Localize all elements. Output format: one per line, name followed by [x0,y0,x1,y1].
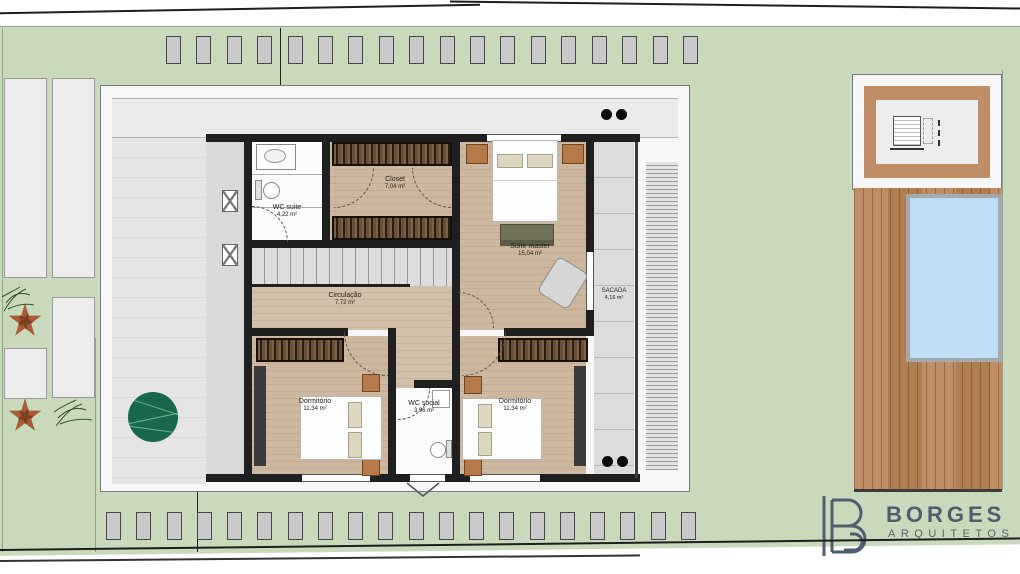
sketch-line-vertical [95,338,96,552]
spotlight-icon [602,456,613,467]
lawn-edge-line [0,26,1020,27]
room-label-closet: Closet 7,04 m² [360,176,430,191]
pergola-beam [167,512,182,540]
pergola-beam [500,36,515,64]
pillow [527,154,553,168]
brand-name: BORGES [886,502,1005,528]
wall [414,380,452,388]
pergola-beam [560,512,575,540]
pergola-beam [683,36,698,64]
room-sacada-floor [594,142,634,478]
pergola-beam [288,36,303,64]
pergola-beam [196,36,211,64]
pergola-beam [257,36,272,64]
bed-fold-line [492,180,558,181]
wardrobe [256,338,344,362]
pergola-beam [378,512,393,540]
wall [206,474,302,482]
room-label-sacada: SACADA 4,16 m² [595,288,633,301]
roof-eave-strip [112,98,678,138]
toilet-bowl [263,182,280,199]
sketch-line-vertical [1002,70,1003,490]
pillow [348,432,362,458]
nightstand [362,374,380,392]
pergola-beam [620,512,635,540]
pergola-beam [653,36,668,64]
pergola-beam [136,512,151,540]
room-label-dormitorio-2: Dormitório 11,34 m² [475,398,555,413]
swimming-pool [906,194,1002,362]
tv-panel [574,366,586,466]
pergola-beam [439,512,454,540]
pergola-beam [592,36,607,64]
tv-panel [254,366,266,466]
wall [206,134,640,142]
nightstand [464,376,482,394]
site-boundary-line [0,4,480,14]
pergola-beam [622,36,637,64]
pergola-beam [288,512,303,540]
deck-edge-line [854,489,1002,492]
pergola-beam [651,512,666,540]
garden-paver-panel [4,348,47,399]
washbasin-sink [264,149,286,163]
wall [244,328,348,336]
pergola-beam [409,36,424,64]
toilet-tank [255,180,262,200]
pergola-row-bottom [106,512,696,542]
pergola-beam [257,512,272,540]
pergola-beam [227,36,242,64]
nightstand [464,458,482,476]
grill-base-line [890,148,924,150]
fern-plant-icon [52,396,96,435]
wardrobe [332,216,452,240]
pergola-beam [590,512,605,540]
toilet-tank [446,440,452,458]
pergola-beam [318,512,333,540]
nightstand [362,458,380,476]
wall [322,142,330,248]
spotlight-icon [617,456,628,467]
pergola-beam [197,512,212,540]
entry-door-swing-icon [406,482,440,503]
pillow [478,432,492,456]
wall [504,328,592,336]
pergola-beam [318,36,333,64]
nightstand [562,144,584,164]
pergola-beam [530,512,545,540]
wardrobe [332,142,452,166]
counter-divider-line [938,120,940,146]
pergola-beam [440,36,455,64]
pillow [497,154,523,168]
toilet-bowl [430,442,446,458]
wardrobe [498,338,588,362]
pergola-beam [106,512,121,540]
stair-handrail [252,284,410,287]
pergola-beam [348,512,363,540]
balcony-glass-door [586,252,594,310]
nightstand [466,144,488,164]
room-label-wc-suite: WC suite 4,22 m² [252,204,322,219]
pergola-beam [499,512,514,540]
window [302,474,370,482]
partition-line [252,174,322,175]
louver-screen [646,162,678,470]
tree-icon [128,392,178,442]
wall-column-marker [222,244,238,266]
wall-column-marker [222,190,238,212]
room-label-dormitorio-1: Dormitório 11,34 m² [275,398,355,413]
spotlight-icon [601,109,612,120]
garden-paver-panel [52,297,95,398]
room-label-suite-master: Suíte master 15,04 m² [490,243,570,258]
pergola-beam [469,512,484,540]
room-label-wc-social: WC social 3,96 m² [396,400,452,415]
grill-side-rack [923,118,933,144]
pergola-beam [348,36,363,64]
wall [388,328,396,482]
pergola-beam [166,36,181,64]
pergola-beam [227,512,242,540]
staircase [252,248,452,286]
garden-paver-panel [4,78,47,278]
borges-logo-icon [820,494,880,563]
grill-icon [893,116,921,146]
wall [244,134,252,482]
pergola-row-top [166,36,698,66]
spotlight-icon [616,109,627,120]
entry-door-gap [410,474,445,482]
double-bed [492,140,558,222]
garden-paver-panel [52,78,95,278]
pergola-beam [409,512,424,540]
pergola-beam [561,36,576,64]
pergola-beam [470,36,485,64]
pergola-beam [379,36,394,64]
site-boundary-line [450,1,1020,10]
fern-plant-icon [0,283,40,320]
pergola-beam [681,512,696,540]
wall [540,474,640,482]
architectural-site-plan: WC suite 4,22 m² Closet 7,04 m² Suíte ma… [0,0,1020,574]
room-label-circulacao: Circulação 7,72 m² [305,292,385,307]
pergola-beam [531,36,546,64]
balcony-railing [635,142,638,478]
